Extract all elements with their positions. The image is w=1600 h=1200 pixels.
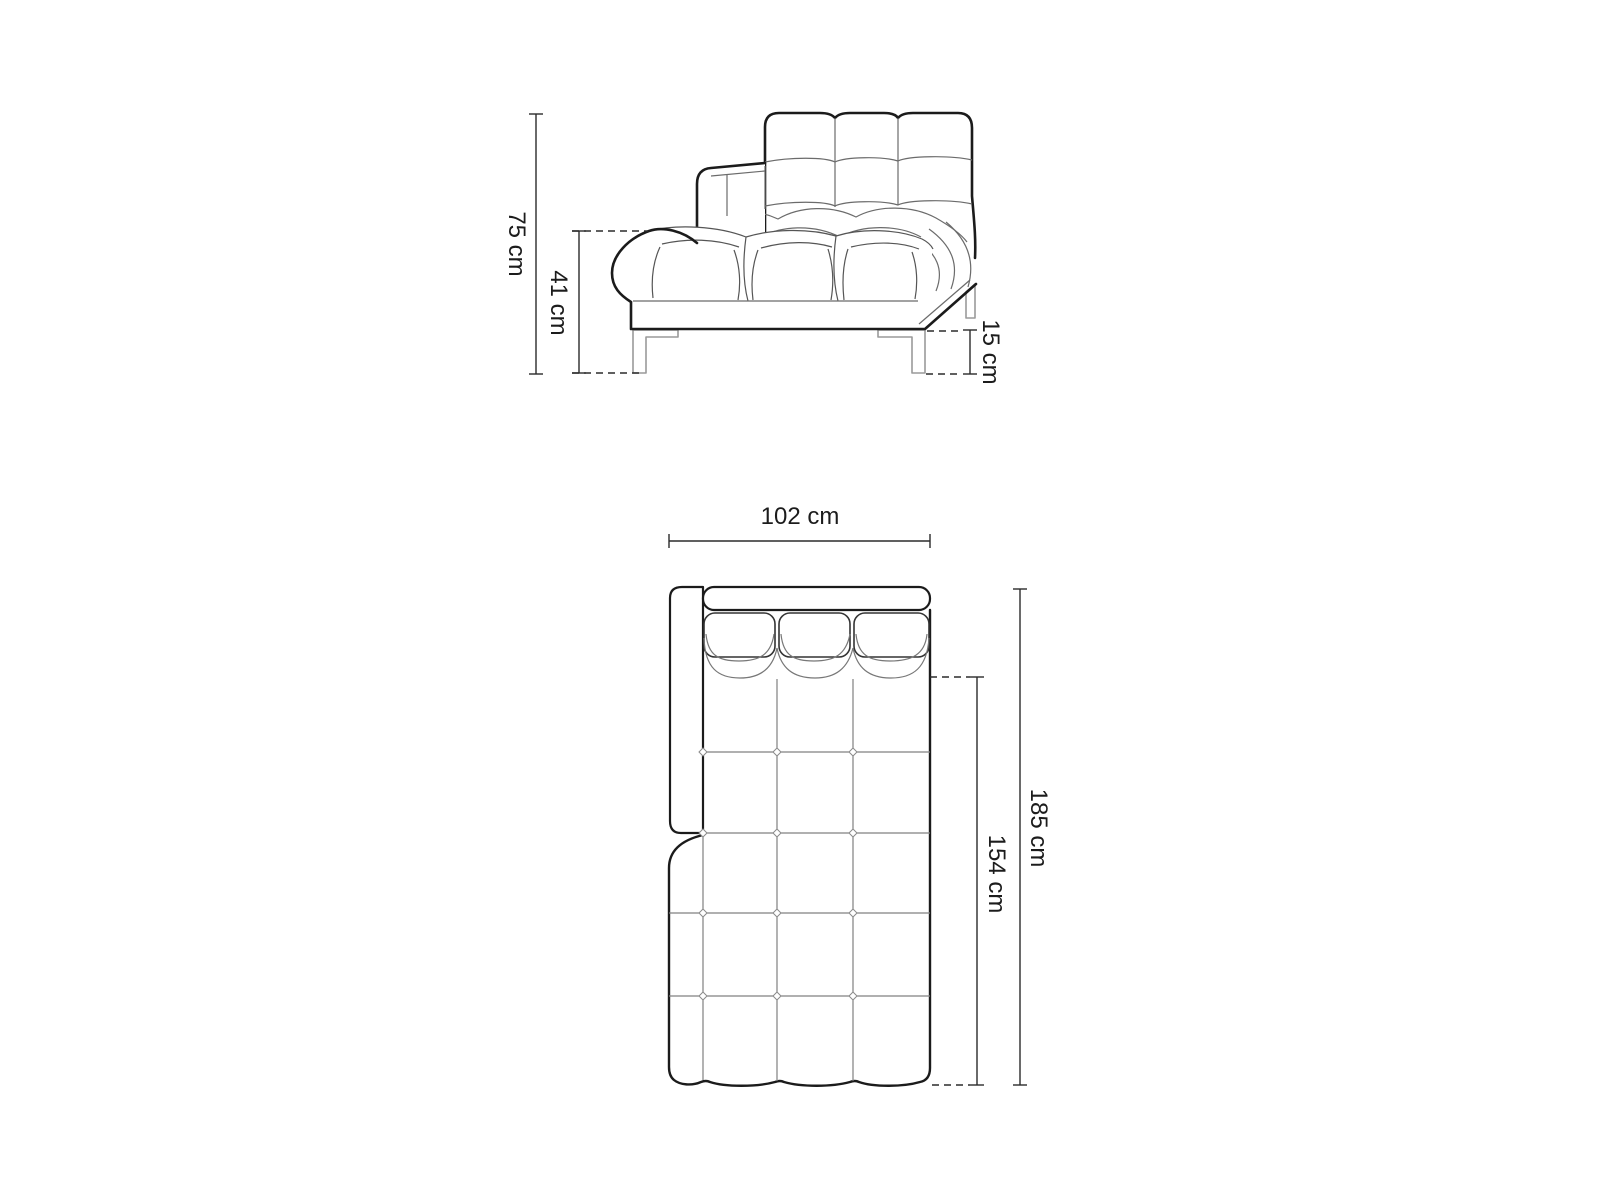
left-leg (633, 330, 678, 373)
plan-body-outline (669, 610, 930, 1086)
right-leg (878, 330, 925, 373)
dim-label-seat-depth: 154 cm (984, 835, 1008, 914)
dim-label-total-height: 75 cm (504, 211, 528, 276)
plan-back-cushion-rolls (704, 634, 929, 678)
dim-line-15cm (926, 330, 977, 374)
plan-back-cushions (704, 613, 929, 657)
dim-label-width: 102 cm (761, 505, 840, 529)
plan-tuft-buttons (699, 748, 857, 1000)
furniture-dimension-diagram: 75 cm 41 cm 15 cm 102 cm 185 cm 154 cm (0, 0, 1600, 1200)
dim-label-total-depth: 185 cm (1026, 789, 1050, 868)
plan-armrest (670, 587, 703, 833)
seat-cushions-fill (612, 227, 932, 301)
top-view-drawing (669, 587, 930, 1086)
plan-backrest-bar (703, 587, 930, 610)
side-view-drawing (612, 113, 976, 373)
dim-line-75cm (529, 114, 543, 374)
plan-tufting-grid (669, 679, 930, 1081)
dim-line-102cm (669, 534, 930, 548)
dim-label-leg-height: 15 cm (978, 319, 1002, 384)
diagram-line-art (0, 0, 1600, 1200)
dim-line-154cm (930, 677, 984, 1085)
dim-label-seat-height: 41 cm (546, 270, 570, 335)
